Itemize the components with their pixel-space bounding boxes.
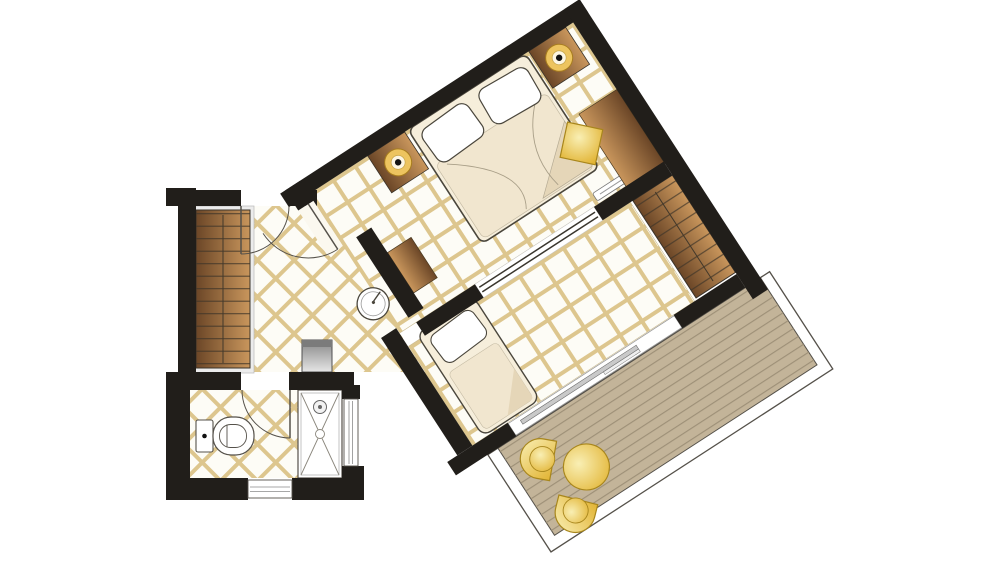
wall (196, 190, 241, 206)
desk-chair (560, 122, 603, 165)
shower-drain (316, 430, 325, 439)
wardrobe-hall (192, 206, 254, 373)
shower-head-dot (318, 405, 322, 409)
flush-button (202, 434, 207, 439)
wall (342, 466, 364, 500)
minibar (302, 340, 332, 372)
shower (298, 390, 342, 478)
floor-plan (0, 0, 1000, 563)
bathroom-window-bottom (248, 480, 292, 498)
floor-plan-canvas (0, 0, 1000, 563)
wall (178, 188, 196, 374)
bathroom-window-side (344, 399, 358, 466)
wall (342, 385, 360, 399)
toilet (196, 417, 254, 455)
wall (190, 372, 241, 390)
wall (166, 478, 248, 500)
